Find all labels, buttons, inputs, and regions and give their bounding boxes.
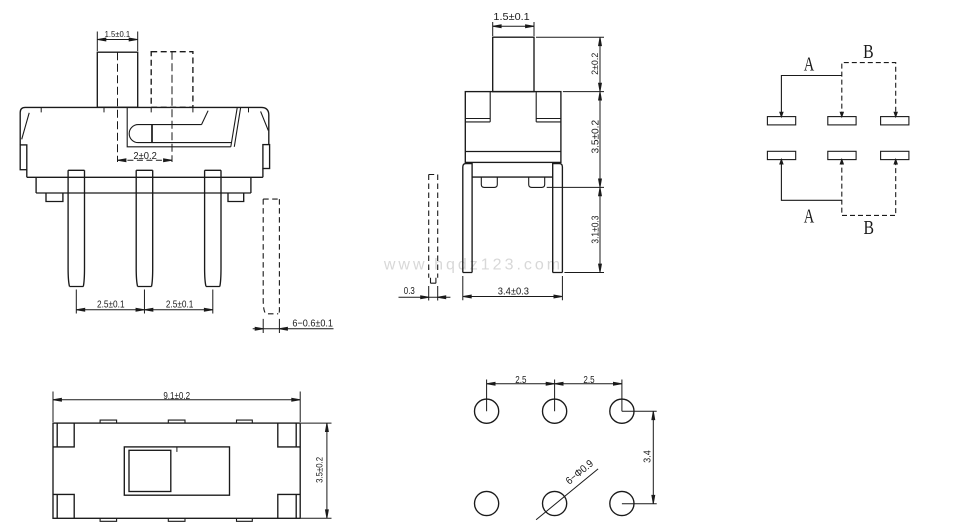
svg-text:2.5: 2.5: [583, 374, 594, 386]
svg-text:1.5±0.1: 1.5±0.1: [105, 29, 131, 39]
svg-text:A: A: [804, 53, 815, 75]
svg-text:2.5: 2.5: [515, 374, 526, 386]
svg-text:0.3: 0.3: [404, 286, 415, 297]
svg-text:3.4: 3.4: [643, 450, 654, 463]
svg-text:A: A: [804, 206, 815, 228]
svg-text:B: B: [863, 217, 874, 239]
svg-text:2±0.2: 2±0.2: [133, 151, 157, 162]
svg-text:2.5±0.1: 2.5±0.1: [97, 299, 125, 311]
svg-text:3.1±0.3: 3.1±0.3: [589, 215, 601, 243]
svg-text:2±0.2: 2±0.2: [590, 53, 600, 75]
svg-text:1.5±0.1: 1.5±0.1: [493, 11, 529, 23]
svg-text:B: B: [863, 41, 874, 63]
svg-text:www.hqdz123.com: www.hqdz123.com: [383, 257, 563, 274]
svg-text:3.5±0.2: 3.5±0.2: [589, 120, 601, 154]
svg-text:6−0.6±0.1: 6−0.6±0.1: [292, 318, 333, 330]
svg-text:3.5±0.2: 3.5±0.2: [315, 457, 325, 483]
svg-text:2.5±0.1: 2.5±0.1: [166, 299, 194, 311]
svg-text:6−Φ0.9: 6−Φ0.9: [564, 458, 596, 488]
svg-text:9.1±0.2: 9.1±0.2: [163, 390, 190, 402]
svg-text:3.4±0.3: 3.4±0.3: [498, 285, 529, 297]
